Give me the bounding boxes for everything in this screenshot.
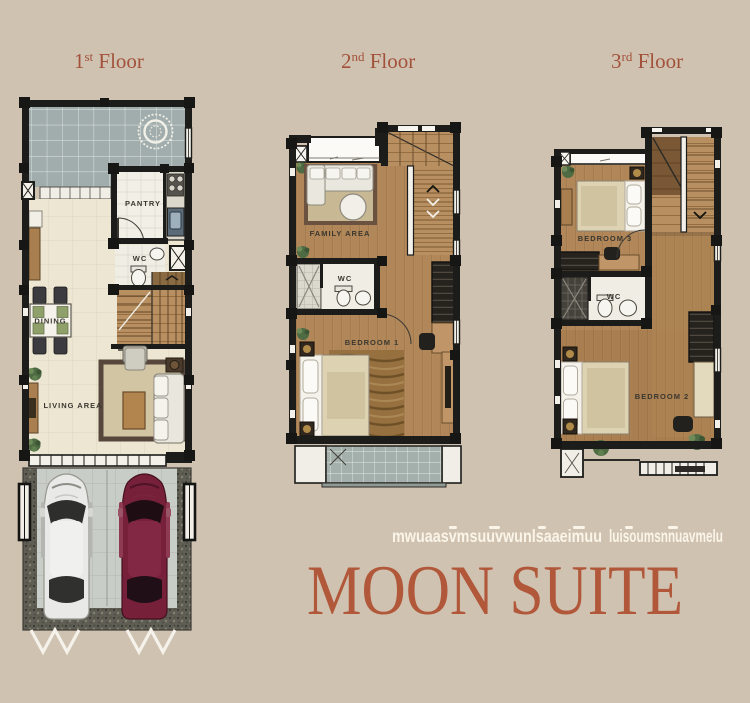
svg-text:1st Floor: 1st Floor: [74, 49, 144, 73]
svg-text:BEDROOM 2: BEDROOM 2: [635, 392, 689, 401]
svg-text:WC: WC: [133, 254, 148, 263]
svg-text:MOON SUITE: MOON SUITE: [307, 552, 683, 630]
svg-text:FAMILY AREA: FAMILY AREA: [310, 229, 371, 238]
svg-text:WC: WC: [607, 292, 622, 301]
svg-text:BEDROOM 3: BEDROOM 3: [578, 234, 632, 243]
svg-text:PANTRY: PANTRY: [125, 199, 161, 208]
svg-text:LIVING AREA: LIVING AREA: [43, 401, 102, 410]
svg-text:luisoumsnnuavmelu: luisoumsnnuavmelu: [609, 526, 723, 546]
svg-text:BEDROOM 1: BEDROOM 1: [345, 338, 399, 347]
svg-text:WC: WC: [338, 274, 353, 283]
svg-text:DINING: DINING: [34, 317, 66, 326]
